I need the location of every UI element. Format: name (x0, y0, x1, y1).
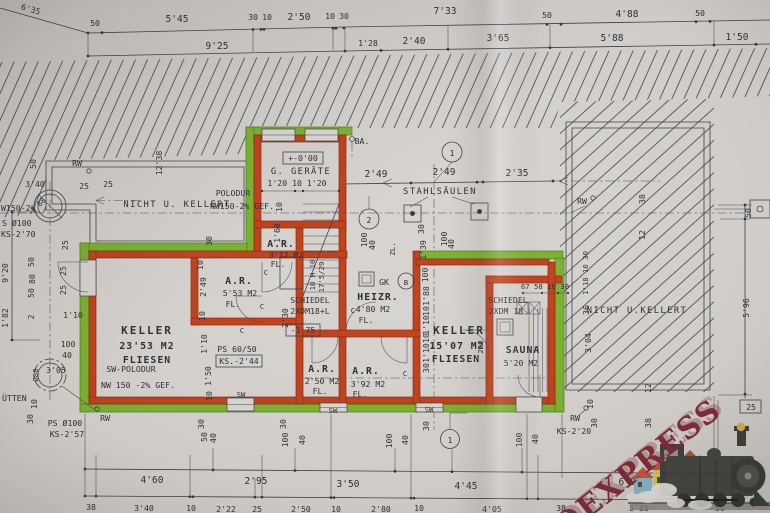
floorplan-sheet: 6'35 50 5'45 30 10 2'50 10 30 7'33 50 4'… (0, 0, 770, 513)
photo-lighting-overlays (0, 0, 770, 513)
basement-floorplan-drawing: 6'35 50 5'45 30 10 2'50 10 30 7'33 50 4'… (0, 0, 770, 513)
